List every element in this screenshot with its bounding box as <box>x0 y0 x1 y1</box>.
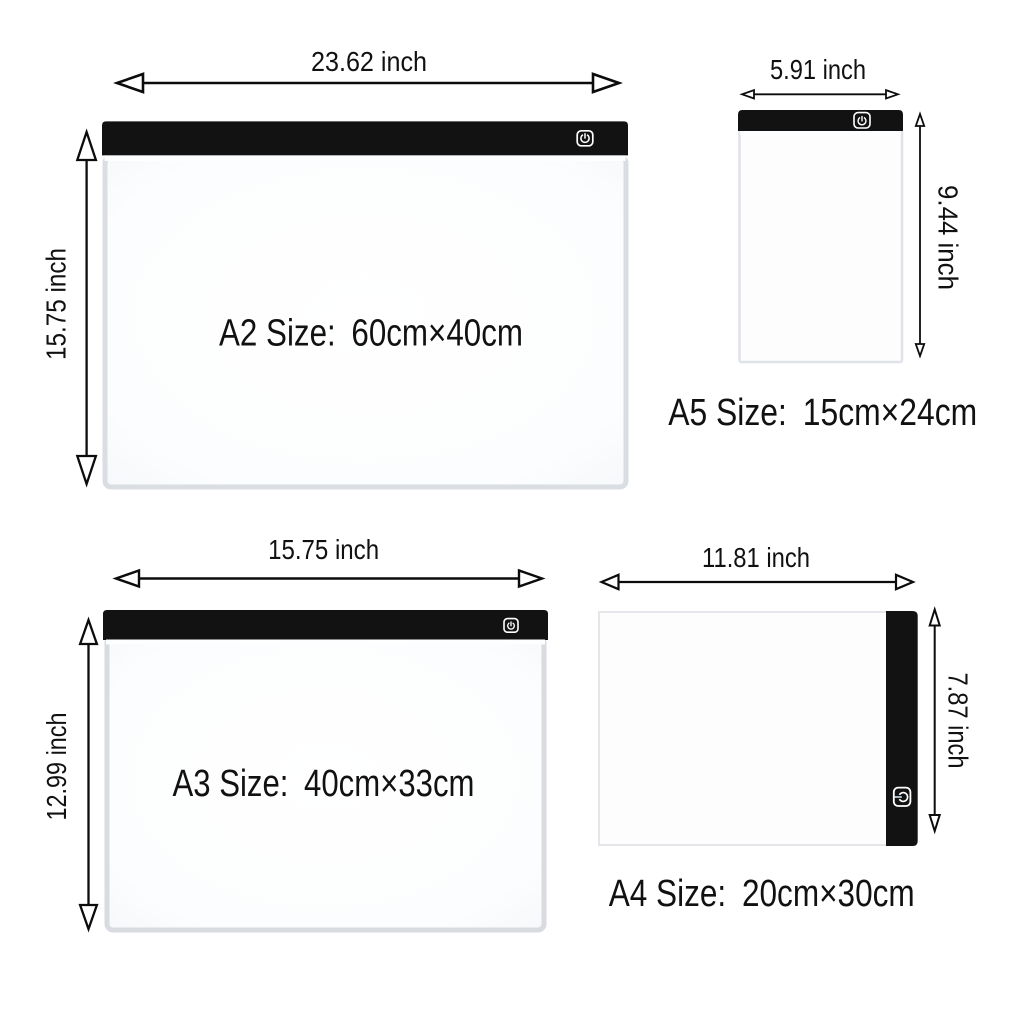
svg-text:15.75 inch: 15.75 inch <box>268 534 379 565</box>
svg-text:5.91 inch: 5.91 inch <box>770 54 866 85</box>
svg-text:A2 Size: 60cm×40cm: A2 Size: 60cm×40cm <box>219 313 523 355</box>
svg-text:11.81 inch: 11.81 inch <box>702 542 810 573</box>
svg-text:A3 Size: 40cm×33cm: A3 Size: 40cm×33cm <box>173 763 475 805</box>
svg-text:7.87 inch: 7.87 inch <box>943 673 974 769</box>
svg-text:A5 Size: 15cm×24cm: A5 Size: 15cm×24cm <box>668 392 977 434</box>
svg-text:9.44 inch: 9.44 inch <box>933 185 964 290</box>
svg-text:15.75 inch: 15.75 inch <box>41 248 72 360</box>
svg-text:23.62 inch: 23.62 inch <box>311 46 427 77</box>
svg-text:12.99 inch: 12.99 inch <box>41 713 72 821</box>
svg-text:A4 Size: 20cm×30cm: A4 Size: 20cm×30cm <box>609 873 915 915</box>
